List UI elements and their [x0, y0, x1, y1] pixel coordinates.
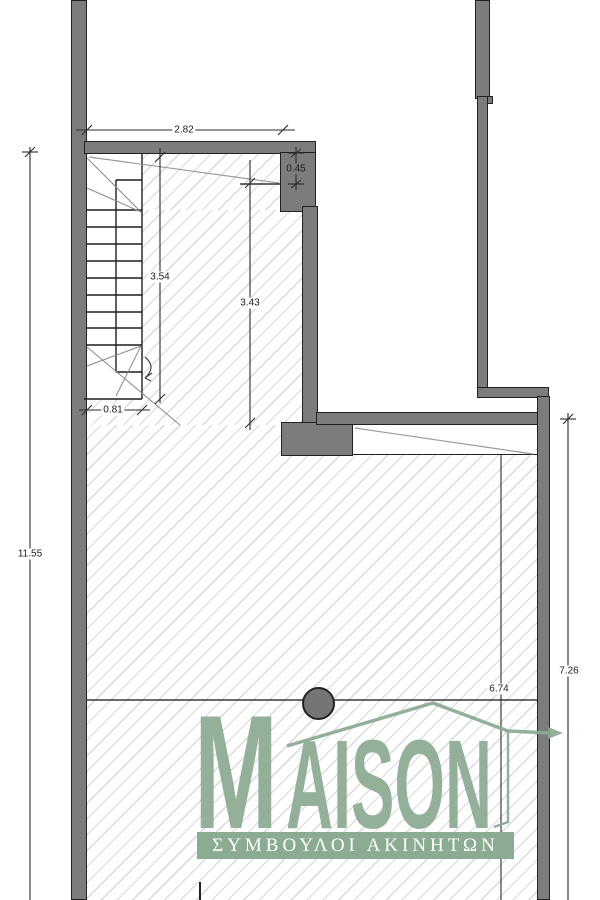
brand-watermark: M AISON — [0, 0, 600, 900]
logo-tagline-banner: ΣΥΜΒΟΥΛΟΙ ΑΚΙΝΗΤΩΝ — [197, 832, 514, 859]
floor-plan-canvas: 2.82 0.45 3.54 3.43 0.81 11.55 7.26 6.74… — [0, 0, 600, 900]
logo-tagline: ΣΥΜΒΟΥΛΟΙ ΑΚΙΝΗΤΩΝ — [212, 835, 499, 857]
logo-roof-arrow-icon — [548, 727, 563, 739]
